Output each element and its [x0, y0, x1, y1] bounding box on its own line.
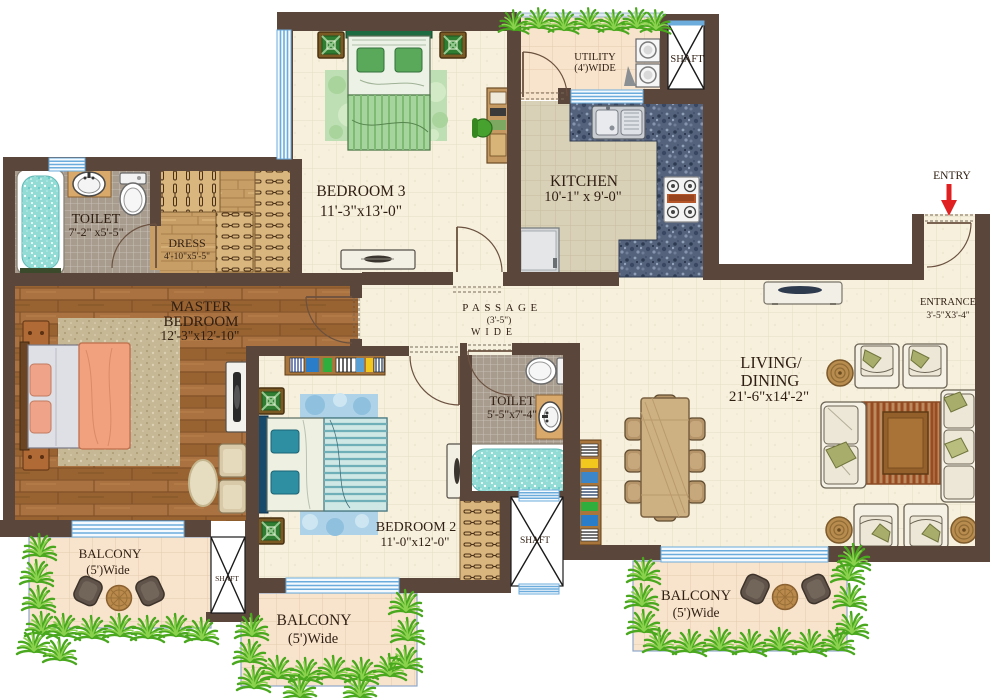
svg-text:(3'-5"): (3'-5"): [487, 315, 512, 326]
svg-text:11'-3"x13'-0": 11'-3"x13'-0": [320, 203, 402, 220]
svg-text:DRESS: DRESS: [168, 236, 205, 250]
svg-text:KITCHEN: KITCHEN: [550, 173, 618, 190]
svg-text:(5')Wide: (5')Wide: [86, 563, 130, 577]
svg-text:BALCONY: BALCONY: [661, 588, 732, 604]
svg-text:SHAFT: SHAFT: [520, 536, 550, 546]
svg-text:BEDROOM 2: BEDROOM 2: [376, 520, 457, 535]
svg-text:ENTRY: ENTRY: [933, 170, 971, 182]
svg-text:UTILITY: UTILITY: [574, 52, 616, 63]
svg-text:SHAFT: SHAFT: [215, 574, 239, 583]
svg-text:10'-1" x 9'-0": 10'-1" x 9'-0": [544, 189, 622, 205]
svg-text:BALCONY: BALCONY: [79, 546, 142, 561]
svg-text:(5')Wide: (5')Wide: [288, 631, 338, 647]
svg-text:ENTRANCE: ENTRANCE: [920, 297, 976, 308]
svg-text:4'-10"x5'-5": 4'-10"x5'-5": [164, 252, 210, 262]
svg-text:21'-6"x14'-2": 21'-6"x14'-2": [729, 389, 809, 405]
svg-text:7'-2" x5'-5": 7'-2" x5'-5": [68, 225, 123, 239]
svg-text:12'-3"x12'-10": 12'-3"x12'-10": [161, 328, 240, 343]
svg-text:TOILET: TOILET: [489, 393, 534, 408]
svg-text:(5')Wide: (5')Wide: [673, 605, 720, 620]
svg-text:WIDE: WIDE: [471, 327, 517, 338]
svg-text:DINING: DINING: [741, 371, 800, 390]
svg-text:SHAFT: SHAFT: [670, 54, 704, 65]
svg-text:(4')WIDE: (4')WIDE: [574, 63, 616, 74]
svg-text:LIVING/: LIVING/: [740, 353, 802, 372]
svg-text:PASSAGE: PASSAGE: [462, 302, 541, 314]
svg-text:BALCONY: BALCONY: [277, 612, 352, 629]
svg-text:5'-5"x7'-4": 5'-5"x7'-4": [487, 409, 537, 421]
svg-text:MASTER: MASTER: [171, 299, 232, 315]
svg-text:3'-5"X3'-4": 3'-5"X3'-4": [926, 311, 969, 321]
svg-text:11'-0"x12'-0": 11'-0"x12'-0": [381, 534, 450, 549]
svg-text:BEDROOM 3: BEDROOM 3: [316, 183, 405, 200]
